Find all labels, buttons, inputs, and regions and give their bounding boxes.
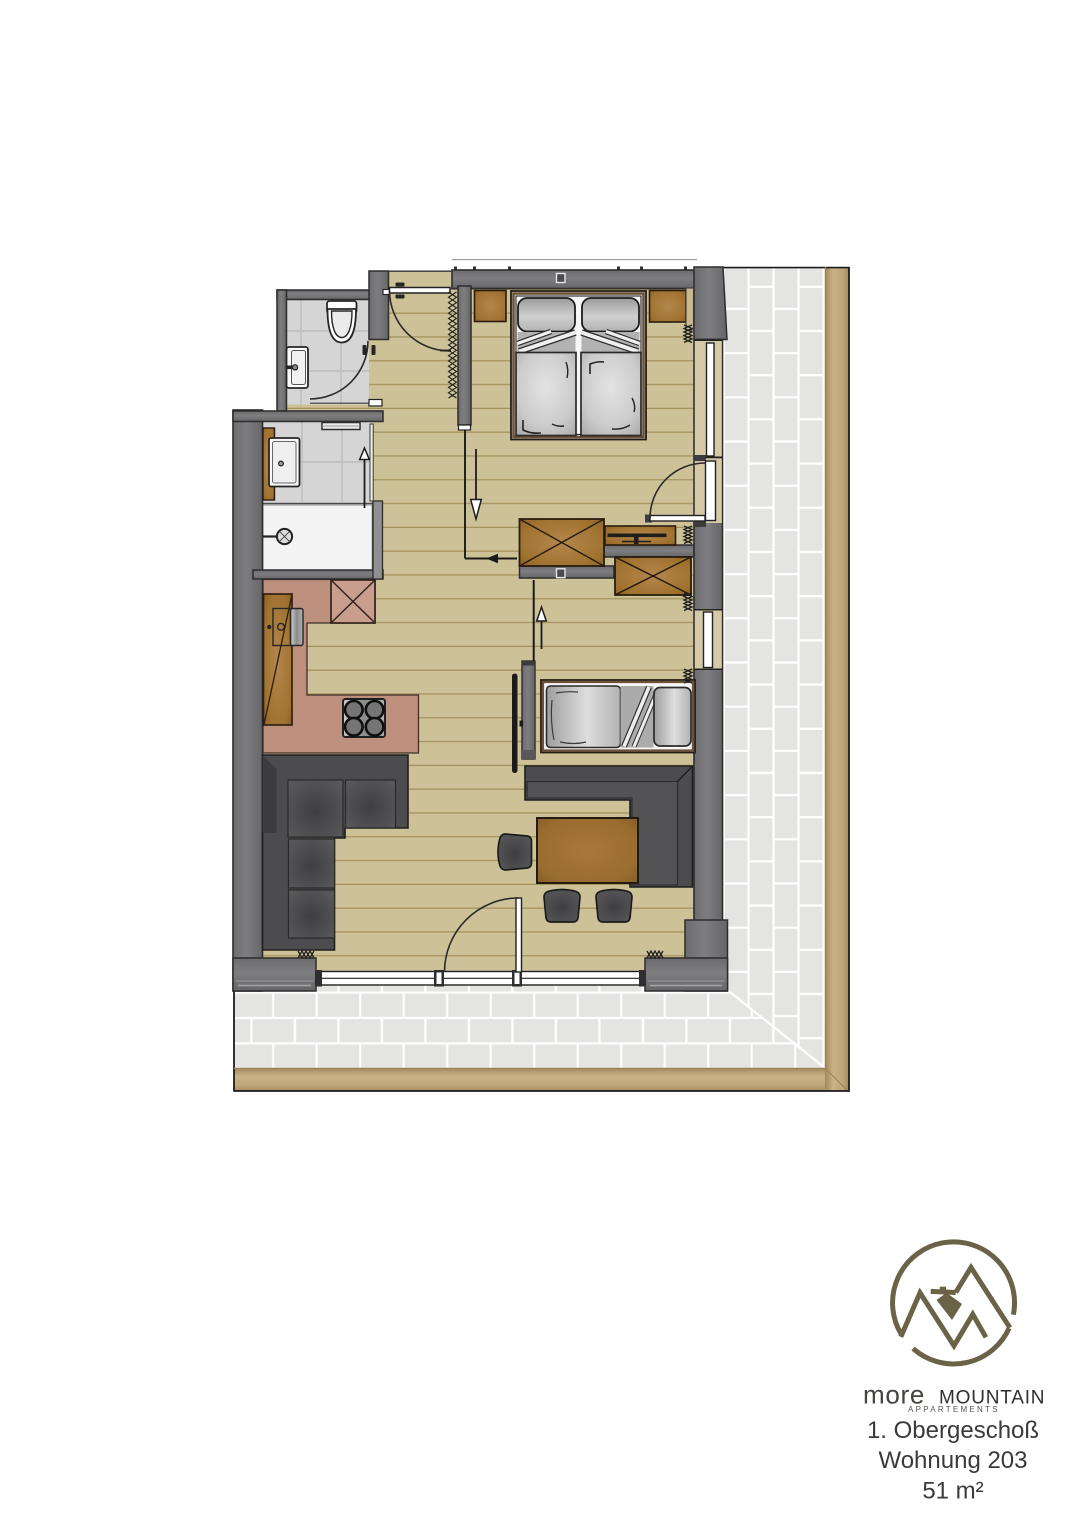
- svg-text:Wohnung 203: Wohnung 203: [878, 1447, 1027, 1474]
- svg-text:51 m²: 51 m²: [922, 1478, 983, 1505]
- svg-text:APPARTEMENTS: APPARTEMENTS: [908, 1405, 1000, 1414]
- svg-text:1. Obergeschoß: 1. Obergeschoß: [867, 1417, 1039, 1444]
